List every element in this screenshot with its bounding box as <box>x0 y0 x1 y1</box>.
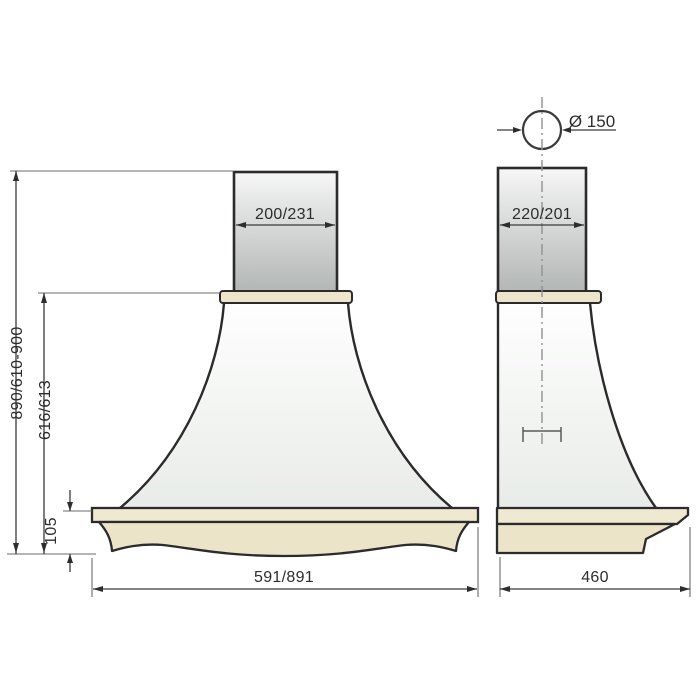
arrow-base-height-top <box>67 502 73 511</box>
side-base-band <box>497 524 675 553</box>
arrow-depth-right <box>680 586 690 592</box>
arrow-overall-top <box>13 171 19 181</box>
arrow-base-width-right <box>467 586 477 592</box>
hood-dimension-drawing: 200/231 220/201 Ø 150 890/610-900 616/61… <box>0 0 700 700</box>
side-bell-body <box>498 303 656 508</box>
front-view <box>92 172 478 556</box>
front-bell-body <box>120 303 452 508</box>
base-height-label: 105 <box>43 517 60 545</box>
side-collar <box>496 291 601 303</box>
overall-height-label: 890/610-900 <box>9 326 26 419</box>
side-view <box>496 97 688 553</box>
side-chimney-depth-label: 220/201 <box>512 206 572 223</box>
front-base-lip <box>92 508 478 522</box>
arrow-base-height-bottom <box>67 554 73 563</box>
front-base-band <box>99 522 469 556</box>
side-base-lip <box>497 508 688 524</box>
arrow-base-width-left <box>93 586 103 592</box>
technical-drawing-canvas: 200/231 220/201 Ø 150 890/610-900 616/61… <box>0 0 700 700</box>
duct-diameter-label: Ø 150 <box>569 112 615 131</box>
arrow-overall-bottom <box>13 543 19 553</box>
front-chimney-width-label: 200/231 <box>255 206 315 223</box>
arrow-duct-left <box>513 127 522 133</box>
depth-label: 460 <box>581 569 609 586</box>
front-chimney <box>234 172 337 292</box>
hood-height-label: 616/613 <box>37 380 54 440</box>
base-width-label: 591/891 <box>254 569 314 586</box>
front-collar <box>220 291 352 303</box>
arrow-hood-top <box>41 293 47 303</box>
arrow-depth-left <box>500 586 510 592</box>
